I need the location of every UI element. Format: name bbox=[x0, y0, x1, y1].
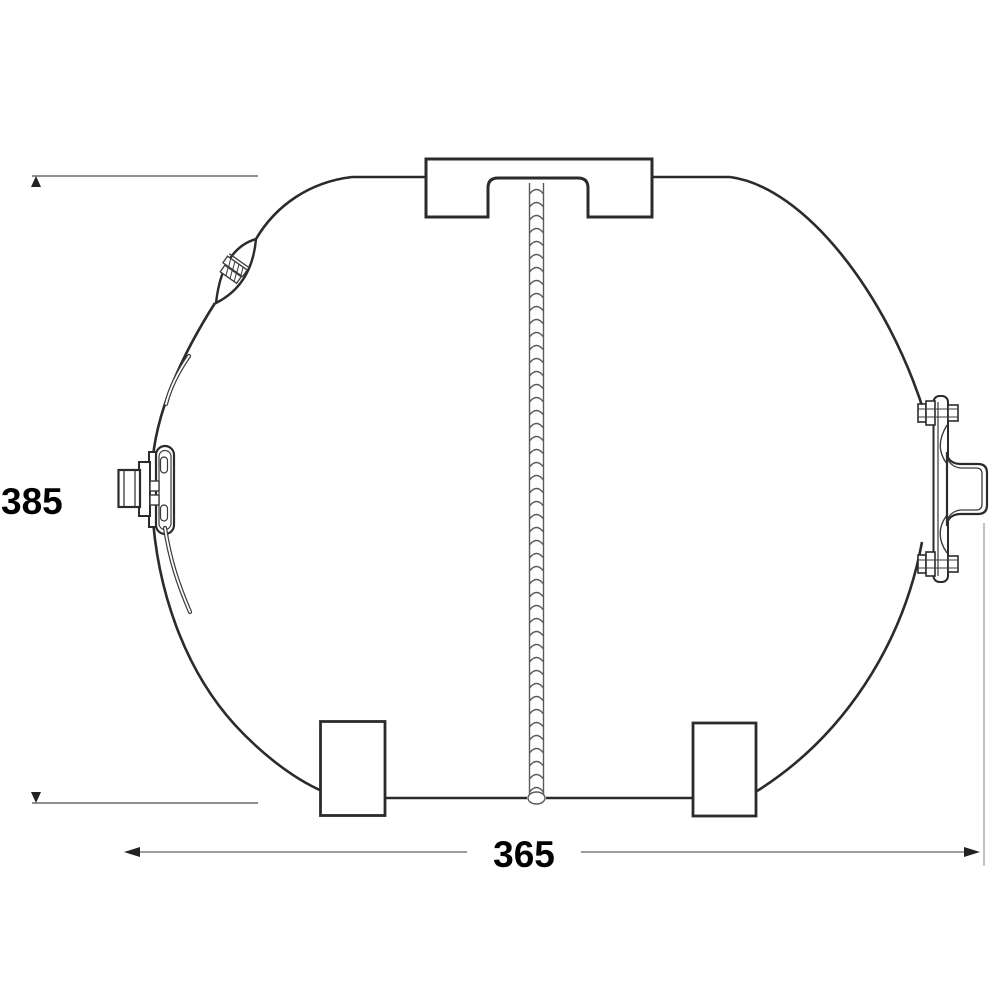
connection-center-detail-1 bbox=[150, 481, 159, 491]
arrow-left-icon bbox=[124, 847, 140, 857]
weld-seam-end-cap bbox=[528, 792, 545, 804]
bolt-washer bbox=[918, 555, 926, 573]
technical-drawing-canvas: 385 365 bbox=[0, 0, 1000, 1000]
arrow-right-icon bbox=[964, 847, 980, 857]
connection-flange-slot-bottom bbox=[161, 505, 168, 521]
dimension-width-label: 365 bbox=[493, 834, 555, 875]
bolt-nut bbox=[948, 556, 958, 572]
flange-contour-bottom-outer bbox=[165, 528, 190, 612]
tank-wall-left-lower bbox=[152, 505, 322, 791]
bolt-nut bbox=[948, 405, 958, 421]
connection-flange-slot-top bbox=[161, 457, 168, 473]
arrow-down-icon bbox=[31, 792, 41, 803]
flange-contour-top-outer bbox=[166, 356, 189, 404]
tank-wall-right-lower bbox=[757, 542, 922, 791]
vertical-weld-seam bbox=[527, 182, 546, 804]
mounting-flange bbox=[918, 396, 987, 582]
tank-shoulder-left bbox=[256, 177, 352, 239]
connection-center-detail-2 bbox=[150, 495, 159, 505]
flange-connection-boss bbox=[947, 452, 987, 526]
air-valve-port bbox=[216, 239, 256, 303]
bolt-head bbox=[926, 401, 935, 425]
tank-wall-left-upper bbox=[152, 303, 215, 470]
bolt-head bbox=[926, 552, 935, 576]
foot-left bbox=[321, 722, 386, 816]
connection-stub bbox=[119, 470, 141, 507]
tank-shoulder-right bbox=[730, 177, 925, 415]
arrow-up-icon bbox=[31, 176, 41, 187]
water-connection-fitting bbox=[119, 356, 191, 612]
technical-drawing-page: 385 365 bbox=[0, 0, 1000, 1000]
dimension-height-label: 385 bbox=[1, 481, 63, 522]
foot-right bbox=[693, 723, 756, 816]
bolt-washer bbox=[918, 404, 926, 422]
